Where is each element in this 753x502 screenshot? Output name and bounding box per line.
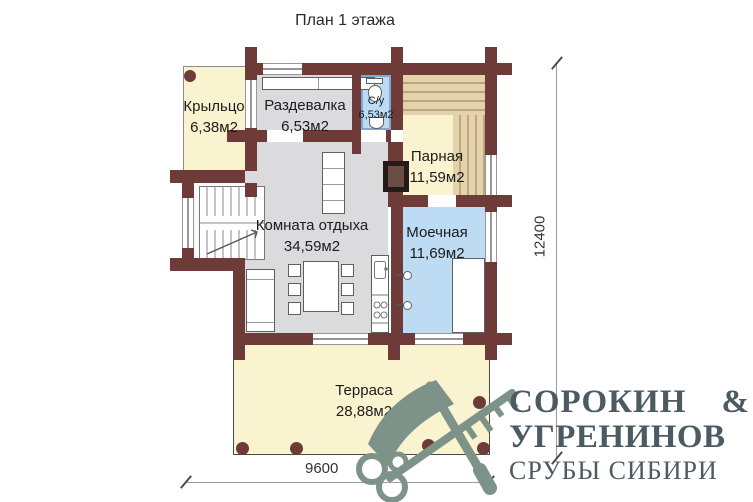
door-opening [361, 130, 386, 142]
wall-segment [456, 195, 497, 207]
window [415, 333, 463, 345]
room-label-porch: Крыльцо6,38м2 [181, 96, 247, 138]
window [182, 198, 194, 248]
room-label-washing: Моечная11,69м2 [400, 222, 474, 264]
shower-icon [403, 271, 412, 280]
brand-line2: УГРЕНИНОВ [509, 421, 750, 454]
wall-segment [368, 333, 415, 345]
log-end [233, 345, 245, 360]
wall-segment [176, 170, 245, 183]
brand-logo: СОРОКИН& УГРЕНИНОВ СРУБЫ СИБИРИ [509, 386, 750, 484]
log-end [245, 47, 257, 63]
wall-segment [463, 333, 497, 345]
chair [341, 302, 354, 315]
wall-segment [233, 271, 245, 333]
log-end [245, 183, 257, 197]
toilet-icon [366, 78, 383, 84]
wall-segment [245, 63, 257, 80]
chair [288, 283, 301, 296]
brand-line1: СОРОКИН& [509, 386, 750, 419]
porch-post [184, 70, 196, 82]
log-end [485, 345, 497, 360]
shower-icon [396, 274, 404, 276]
wall-segment [302, 63, 497, 75]
dimension-value-vertical: 12400 [532, 197, 549, 277]
window [263, 63, 302, 75]
door-opening [313, 333, 368, 345]
log-end [391, 47, 403, 63]
log-end [497, 63, 512, 75]
room-label-lounge: Комната отдыха34,59м2 [242, 215, 382, 257]
log-end [170, 258, 176, 271]
floor-plan-page: План 1 этажа [0, 0, 753, 502]
kitchen-unit [371, 255, 389, 333]
chair [341, 264, 354, 277]
log-end [388, 345, 400, 360]
washing-bench [452, 258, 485, 333]
page-title: План 1 этажа [245, 12, 445, 30]
dining-table [303, 261, 339, 312]
chair [341, 283, 354, 296]
log-end [170, 170, 176, 183]
wall-segment [176, 258, 245, 271]
log-end [497, 195, 512, 207]
wardrobe [322, 152, 345, 214]
log-end [497, 333, 512, 345]
sauna-bench [403, 75, 485, 115]
chair [288, 302, 301, 315]
door-opening [428, 195, 456, 207]
dimension-tick [551, 56, 563, 70]
terrace-post [236, 442, 249, 455]
wall-segment [182, 183, 194, 198]
wall-segment [233, 333, 313, 345]
room-label-changing: Раздевалка6,53м2 [258, 95, 352, 137]
shower-icon [396, 304, 404, 306]
sofa [246, 269, 275, 332]
brand-tagline: СРУБЫ СИБИРИ [509, 458, 750, 484]
wall-segment [386, 130, 391, 142]
chair [288, 264, 301, 277]
dimension-value-horizontal: 9600 [305, 460, 338, 477]
wall-segment [391, 195, 428, 207]
room-label-bathroom: С/у6,53м2 [357, 95, 395, 123]
log-end [485, 47, 497, 63]
ampersand: & [722, 386, 751, 419]
log-end [352, 142, 361, 154]
shower-icon [403, 301, 412, 310]
window [485, 212, 497, 262]
window [485, 155, 497, 195]
room-label-steam: Парная11,59м2 [402, 146, 472, 188]
terrace-post [290, 442, 303, 455]
wall-segment [485, 63, 497, 155]
